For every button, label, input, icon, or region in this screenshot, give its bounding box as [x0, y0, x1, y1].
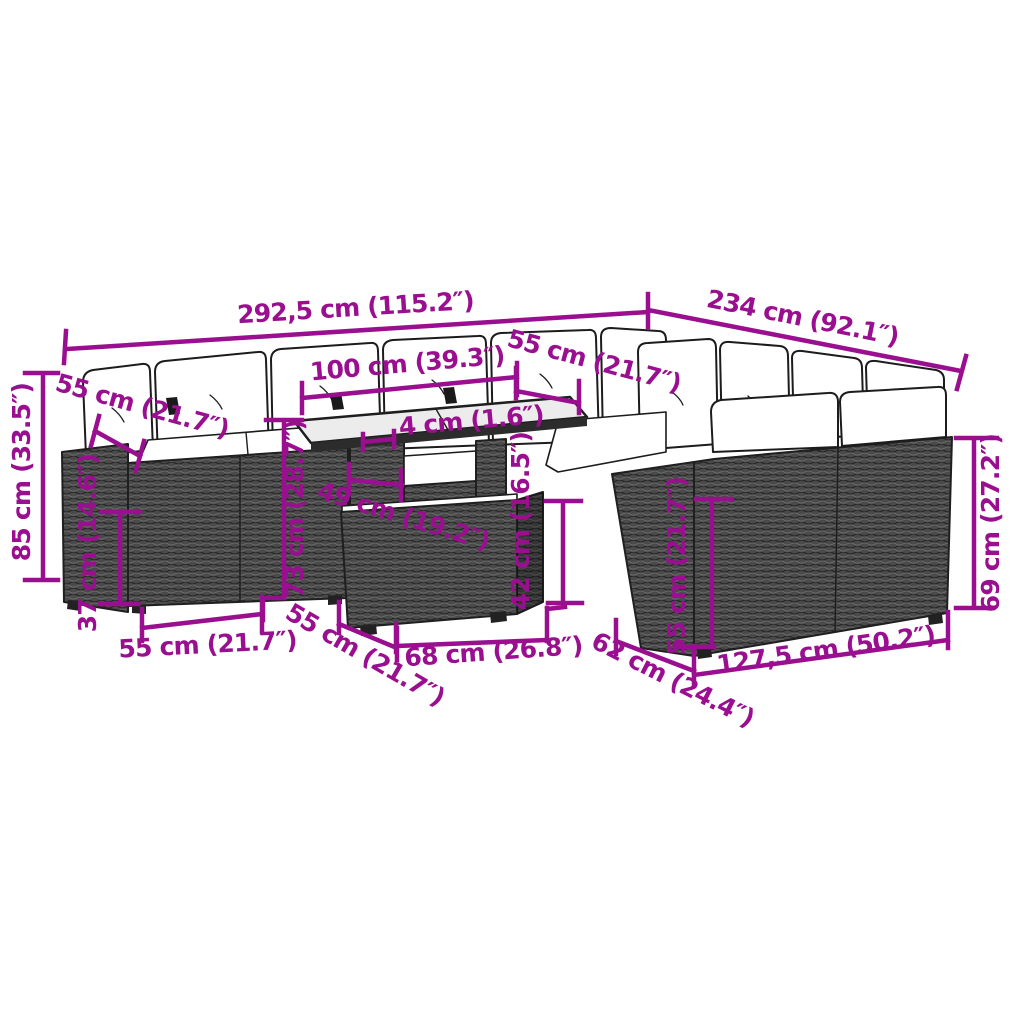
dim-label: 42 cm (16.5″)	[506, 432, 535, 610]
dim-label: 73 cm (28.7″)	[280, 420, 309, 598]
dim-label: 37 cm (14.6″)	[73, 454, 102, 632]
dim-label: 55 cm (21.7″)	[662, 477, 691, 655]
rear-cushion-1	[711, 393, 838, 452]
dim-label: 85 cm (33.5″)	[7, 383, 36, 561]
diagram-canvas: 292,5 cm (115.2″) 234 cm (92.1″) 100 cm …	[0, 0, 1024, 1024]
dim-label: 292,5 cm (115.2″)	[236, 286, 474, 329]
dim-label: 55 cm (21.7″)	[118, 625, 298, 663]
dim-right-arm-height: 69 cm (27.2″)	[956, 434, 1005, 612]
dim-overall-height: 85 cm (33.5″)	[7, 373, 58, 580]
rear-cushion-2	[840, 387, 946, 446]
dim-label: 68 cm (26.8″)	[403, 631, 583, 672]
dim-label: 69 cm (27.2″)	[976, 434, 1005, 612]
left-base-front	[128, 448, 348, 606]
product-dimension-diagram: 292,5 cm (115.2″) 234 cm (92.1″) 100 cm …	[0, 0, 1024, 1024]
